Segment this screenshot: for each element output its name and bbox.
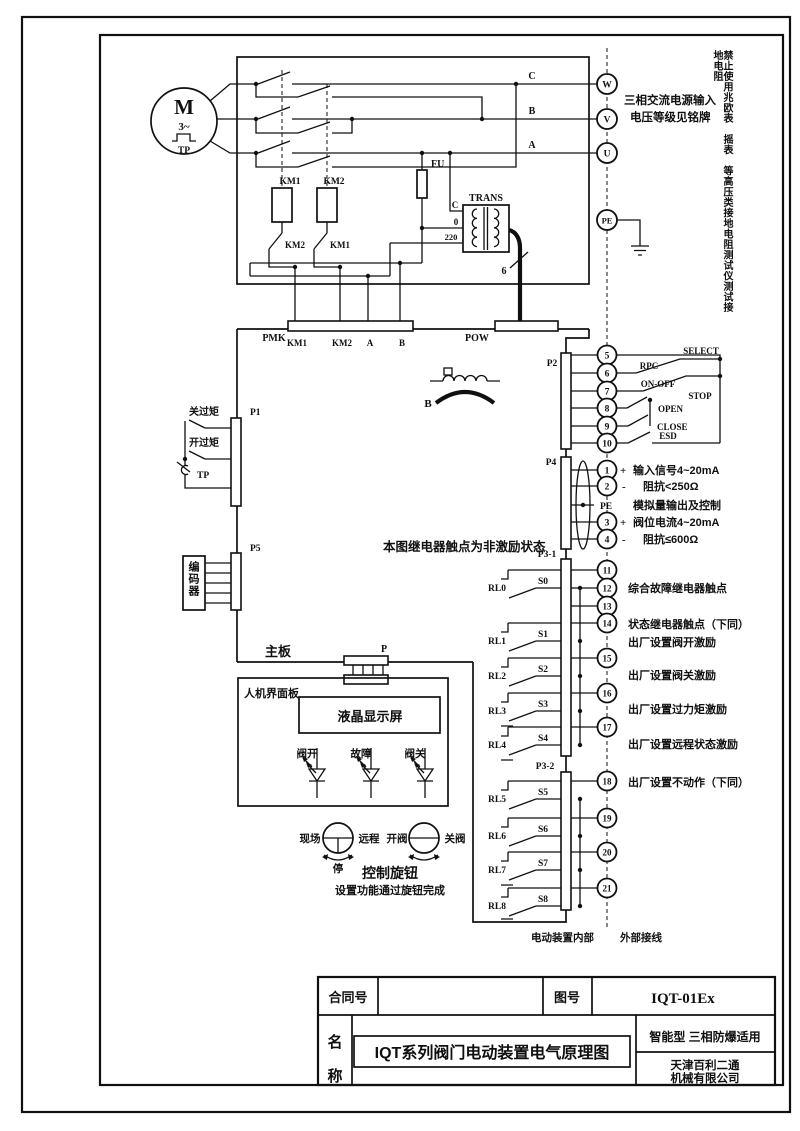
motor-tp-label: TP (178, 146, 190, 156)
pmk-pin-b: B (399, 338, 405, 348)
switch-s1: S1 (538, 630, 548, 640)
terminal-2: 2 (605, 483, 610, 493)
terminal-w: W (602, 81, 612, 91)
rpc-label: RPC (640, 361, 659, 371)
phase-b-label: B (529, 106, 536, 117)
switch-s4: S4 (538, 734, 548, 744)
esd-label: ESD (659, 431, 677, 441)
motor-pulse-glyph (172, 134, 196, 141)
plus-3: + (620, 517, 626, 529)
p1-label: P1 (250, 408, 261, 418)
knob-open-label: 开阀 (387, 832, 408, 845)
relay-rl7: RL7 (488, 866, 506, 876)
terminal-16: 16 (603, 689, 613, 699)
p3-2-label: P3-2 (536, 762, 555, 772)
connector-p-top (344, 656, 388, 665)
p3-wiring (501, 570, 597, 919)
schematic-svg: M 3~ TP C B A W V U PE 三相交流电源输入 电压等级见铭牌 … (0, 0, 800, 1131)
terminal-7: 7 (605, 388, 610, 398)
relay-rl4: RL4 (488, 741, 506, 751)
contract-no-label: 合同号 (328, 990, 367, 1005)
type-label: 智能型 三相防爆适用 (648, 1029, 760, 1044)
name-char-2: 称 (327, 1067, 342, 1085)
figure-no-label: 图号 (554, 990, 580, 1005)
note-noact: 出厂设置不动作（下同） (628, 775, 749, 789)
knob-note: 设置功能通过旋钮完成 (335, 883, 445, 897)
stop-label: STOP (688, 391, 712, 401)
note-remote: 出厂设置远程状态激励 (628, 737, 738, 751)
analog-label: 模拟量输出及控制 (633, 498, 721, 512)
encoder-label: 编码器 (187, 561, 198, 609)
terminal-8: 8 (605, 405, 610, 415)
pe-wire-label: PE (600, 502, 612, 512)
minus-2: - (622, 481, 626, 493)
company-line-1: 天津百利二通 (671, 1058, 740, 1072)
knob-remote-label: 远程 (359, 832, 380, 845)
phase-c-label: C (528, 71, 535, 82)
ground-symbol (617, 220, 649, 255)
switch-s6: S6 (538, 825, 548, 835)
connector-p-bottom (344, 675, 388, 684)
megger-warning-note: 禁止使用兆欧表 摇表 等高压类接地电阻测试仪测试接地电阻 (711, 50, 731, 322)
motor-label: M (174, 95, 194, 119)
note-open: 出厂设置阀开激励 (628, 635, 716, 649)
terminal-18: 18 (603, 777, 613, 787)
mainboard-label: 主板 (265, 644, 292, 659)
connector-p5 (231, 553, 241, 610)
tp-contact-label: TP (197, 471, 209, 481)
transformer-primary-winding (472, 209, 477, 247)
relay-rl0: RL0 (488, 584, 506, 594)
terminal-6: 6 (605, 370, 610, 380)
boundary-inner-label: 电动装置内部 (531, 931, 594, 944)
terminal-5: 5 (605, 352, 610, 362)
km1-aux-label: KM2 (285, 240, 305, 250)
connector-p1 (231, 418, 241, 506)
knob-local-label: 现场 (300, 832, 321, 845)
terminal-u: U (604, 150, 611, 160)
power-cable (509, 230, 520, 321)
relay-state-note: 本图继电器触点为非激励状态 (383, 539, 546, 554)
boundary-outer-label: 外部接线 (619, 931, 662, 944)
pmk-pin-km1: KM1 (287, 338, 307, 348)
drawing-frame (22, 17, 790, 1112)
p5-label: P5 (250, 544, 261, 554)
led-fault-label: 故障 (351, 747, 372, 760)
km1-coil-label: KM1 (279, 177, 300, 187)
terminal-17: 17 (603, 723, 613, 733)
terminal-pe: PE (602, 216, 613, 226)
select-label: SELECT (683, 346, 719, 356)
switch-s2: S2 (538, 665, 548, 675)
power-circuit (210, 57, 597, 321)
terminal-10: 10 (602, 440, 612, 450)
km1-coil (272, 188, 292, 222)
close-torque-label: 关过矩 (189, 405, 219, 418)
connector-p2 (561, 353, 571, 449)
connector-p3-2 (561, 772, 571, 910)
note-close: 出厂设置阀关激励 (628, 668, 716, 682)
control-knobs (322, 823, 440, 860)
terminal-11: 11 (603, 566, 612, 576)
led-open-label: 阀开 (297, 747, 318, 760)
km2-coil-label: KM2 (323, 177, 344, 187)
pmk-label: PMK (262, 333, 286, 344)
tap-0-label: 0 (454, 217, 459, 227)
switch-s0: S0 (538, 577, 548, 587)
terminal-1: 1 (605, 467, 610, 477)
open-torque-label: 开过矩 (189, 436, 219, 449)
b-sensor-tap (444, 368, 452, 375)
motor-phase-label: 3~ (178, 121, 190, 133)
transformer-secondary-winding (494, 209, 499, 247)
on-off-label: ON-OFF (641, 379, 676, 389)
valve-knob-arrow (410, 855, 438, 860)
wire-count-label: 6 (502, 266, 507, 277)
terminal-15: 15 (603, 654, 613, 664)
b-sensor-label: B (424, 398, 432, 410)
terminal-4: 4 (605, 536, 610, 546)
mode-knob-arrow (324, 855, 352, 860)
terminal-20: 20 (603, 848, 613, 858)
drawing-title: IQT系列阀门电动装置电气原理图 (375, 1043, 610, 1062)
note-torque: 出厂设置过力矩激励 (628, 702, 727, 716)
impedance-in-label: 阻抗<250Ω (643, 479, 699, 493)
relay-rl3: RL3 (488, 707, 506, 717)
schematic-page: M 3~ TP C B A W V U PE 三相交流电源输入 电压等级见铭牌 … (0, 0, 800, 1131)
knob-stop-label: 停 (333, 862, 344, 875)
terminal-21: 21 (603, 884, 613, 894)
signal-input-label: 输入信号4~20mA (633, 463, 720, 477)
power-note-2: 电压等级见铭牌 (630, 110, 711, 124)
fuse-fu (417, 170, 427, 198)
p4-label: P4 (546, 458, 557, 468)
transformer-box (463, 205, 509, 252)
position-current-label: 阀位电流4~20mA (633, 515, 720, 529)
connector-p3-1 (561, 559, 571, 756)
relay-rl8: RL8 (488, 902, 506, 912)
company-line-2: 机械有限公司 (671, 1071, 740, 1085)
switch-s8: S8 (538, 895, 548, 905)
lcd-label: 液晶显示屏 (337, 709, 402, 724)
plus-1: + (620, 465, 626, 477)
switch-s5: S5 (538, 788, 548, 798)
b-sensor-arc (436, 392, 494, 403)
relay-rl6: RL6 (488, 832, 506, 842)
pmk-pin-a: A (367, 338, 374, 348)
name-char-1: 名 (327, 1033, 342, 1051)
tap-c-label: C (452, 200, 459, 210)
relay-rl1: RL1 (488, 637, 506, 647)
connector-p4 (561, 457, 571, 549)
relay-rl5: RL5 (488, 795, 506, 805)
pmk-pin-km2: KM2 (332, 338, 352, 348)
terminal-v: V (604, 116, 611, 126)
led-close-label: 阀关 (405, 747, 426, 760)
fuse-label: FU (431, 159, 444, 170)
terminal-13: 13 (603, 602, 613, 612)
note-fault: 综合故障继电器触点 (628, 581, 727, 595)
impedance-out-label: 阻抗≤600Ω (643, 532, 698, 546)
km2-aux-label: KM1 (330, 240, 350, 250)
terminal-14: 14 (603, 619, 613, 629)
knob-close-label: 关阀 (445, 832, 466, 845)
note-status: 状态继电器触点（下同） (628, 617, 749, 631)
terminal-12: 12 (603, 584, 613, 594)
pow-label: POW (465, 333, 489, 344)
km2-coil (317, 188, 337, 222)
switch-s7: S7 (538, 859, 548, 869)
transformer-label: TRANS (469, 193, 503, 204)
labels: M 3~ TP C B A W V U PE 三相交流电源输入 电压等级见铭牌 … (174, 71, 761, 1085)
switch-s3: S3 (538, 700, 548, 710)
knob-title: 控制旋钮 (362, 865, 418, 881)
open-label: OPEN (658, 404, 684, 414)
terminal-3: 3 (605, 519, 610, 529)
connector-pow (495, 321, 558, 331)
minus-4: - (622, 534, 626, 546)
hmi-panel-label: 人机界面板 (244, 686, 300, 700)
terminal-19: 19 (603, 814, 613, 824)
tap-220-label: 220 (445, 232, 458, 242)
connector-pmk (288, 321, 413, 331)
terminal-9: 9 (605, 423, 610, 433)
relay-rl2: RL2 (488, 672, 506, 682)
p-label: P (381, 644, 387, 655)
p2-label: P2 (547, 359, 558, 369)
power-note-1: 三相交流电源输入 (624, 93, 716, 107)
figure-no-value: IQT-01Ex (651, 991, 715, 1007)
phase-a-label: A (528, 140, 536, 151)
b-sensor-coil (430, 376, 500, 382)
